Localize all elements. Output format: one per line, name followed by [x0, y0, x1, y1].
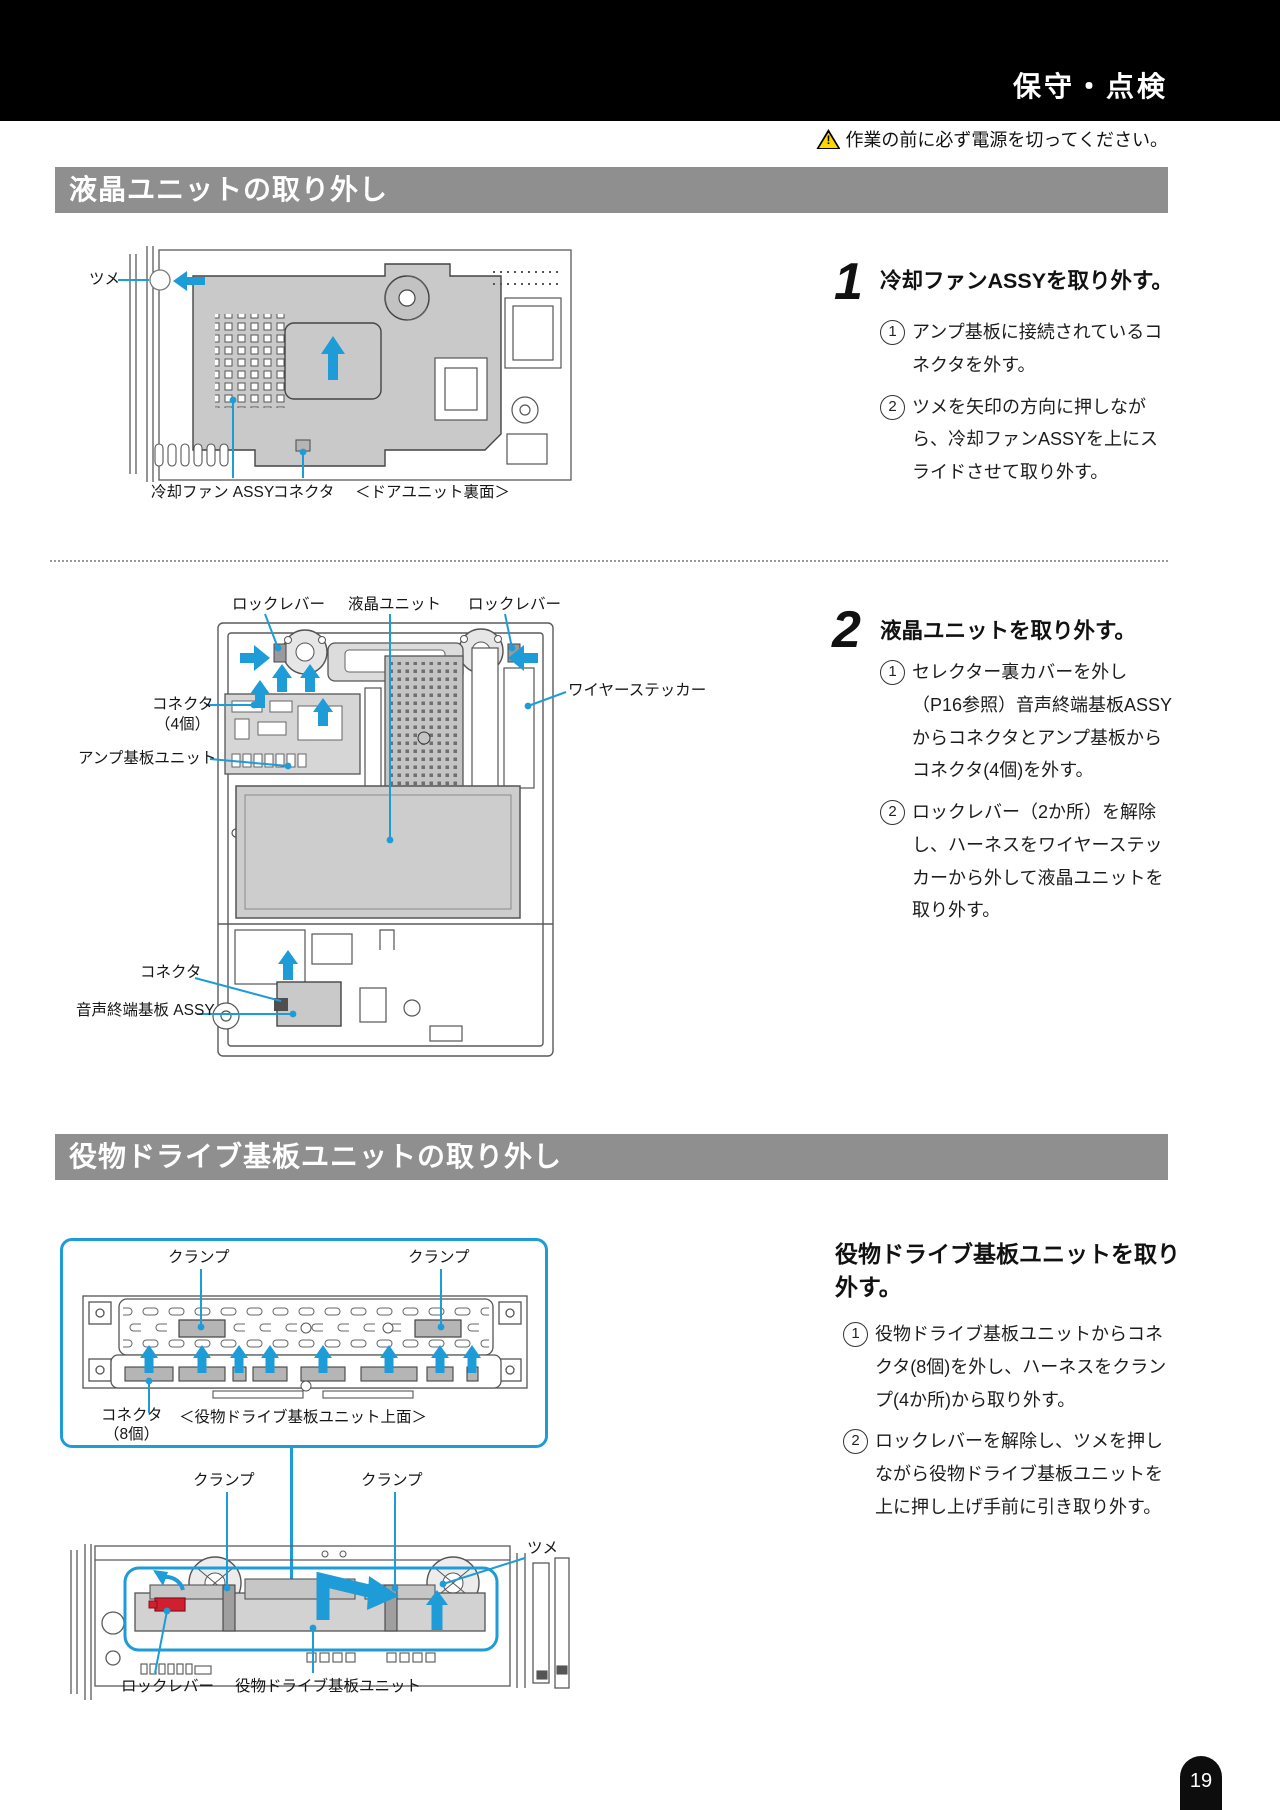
- label-clamp-right: クランプ: [408, 1249, 470, 1268]
- vent-grid: [215, 314, 287, 408]
- step-2-title: 液晶ユニットを取り外す。: [880, 614, 1180, 645]
- step-2-items: 1 セレクター裏カバーを外し（P16参照）音声終端基板ASSYからコネクタとアン…: [880, 656, 1176, 927]
- list-item: 1 アンプ基板に接続されているコネクタを外す。: [880, 316, 1176, 382]
- lcd-panel: [236, 786, 520, 918]
- list-item: 2 ロックレバー（2か所）を解除し、ハーネスをワイヤーステッカーから外して液晶ユ…: [880, 796, 1176, 927]
- label-clamp-left-2: クランプ: [193, 1472, 255, 1491]
- caption-drive-board-top: ＜役物ドライブ基板ユニット上面＞: [179, 1409, 427, 1428]
- circled-number: 1: [880, 320, 905, 345]
- list-item: 2 ロックレバーを解除し、ツメを押しながら役物ドライブ基板ユニットを上に押し上げ…: [843, 1425, 1173, 1523]
- step-2-number: 2: [832, 604, 861, 656]
- diagram-lcd-unit: ロックレバー 液晶ユニット ロックレバー ワイヤーステッカー コネクタ （4個）…: [60, 588, 710, 1066]
- label-lcd-unit: 液晶ユニット: [348, 596, 441, 615]
- door-unit-rear-drawing: [55, 238, 615, 506]
- label-tsume: ツメ: [89, 271, 120, 290]
- label-wire-sticker: ワイヤーステッカー: [568, 682, 706, 701]
- list-item: 1 セレクター裏カバーを外し（P16参照）音声終端基板ASSYからコネクタとアン…: [880, 656, 1176, 787]
- label-lock-lever-right: ロックレバー: [468, 596, 561, 615]
- step-3-title: 役物ドライブ基板ユニットを取り外す。: [835, 1238, 1180, 1303]
- page-number: 19: [1190, 1770, 1212, 1792]
- label-connector-8: コネクタ: [101, 1407, 162, 1426]
- label-connector-audio: コネクタ: [140, 964, 201, 983]
- label-lock-lever: ロックレバー: [121, 1678, 214, 1697]
- step-1-items: 1 アンプ基板に接続されているコネクタを外す。 2 ツメを矢印の方向に押しながら…: [880, 316, 1176, 489]
- header-bar: 保守・点検: [0, 0, 1280, 121]
- warning-text: 作業の前に必ず電源を切ってください。: [845, 126, 1168, 152]
- circled-number: 2: [843, 1429, 868, 1454]
- circled-number: 1: [880, 660, 905, 685]
- label-connector-8-count: （8個）: [104, 1426, 159, 1445]
- section-title-lcd-removal: 液晶ユニットの取り外し: [55, 167, 1168, 213]
- list-item: 1 役物ドライブ基板ユニットからコネクタ(8個)を外し、ハーネスをクランプ(4か…: [843, 1318, 1173, 1416]
- caption-door-unit-rear: ＜ドアユニット裏面＞: [355, 484, 510, 503]
- label-lock-lever-left: ロックレバー: [232, 596, 325, 615]
- circled-number: 2: [880, 800, 905, 825]
- label-clamp-right-2: クランプ: [361, 1472, 423, 1491]
- label-fan-assy: 冷却ファン ASSY: [151, 484, 274, 503]
- label-connector-4-count: （4個）: [155, 716, 210, 735]
- hinge-wheel-left: [283, 630, 327, 674]
- section-title-drive-board-removal: 役物ドライブ基板ユニットの取り外し: [55, 1134, 1168, 1180]
- diagram-door-unit-rear: ツメ 冷却ファン ASSY コネクタ ＜ドアユニット裏面＞: [55, 238, 615, 506]
- label-audio-board: 音声終端基板 ASSY: [76, 1002, 215, 1021]
- page-number-tab: 19: [1180, 1756, 1222, 1810]
- circled-number: 1: [843, 1322, 868, 1347]
- step-3-items: 1 役物ドライブ基板ユニットからコネクタ(8個)を外し、ハーネスをクランプ(4か…: [843, 1318, 1173, 1524]
- label-amp-board-unit: アンプ基板ユニット: [78, 750, 216, 769]
- tab-hole: [150, 270, 170, 290]
- list-item: 2 ツメを矢印の方向に押しながら、冷却ファンASSYを上にスライドさせて取り外す…: [880, 391, 1176, 489]
- label-clamp-left: クランプ: [168, 1249, 230, 1268]
- diagram-drive-board-top: クランプ クランプ コネクタ （8個） ＜役物ドライブ基板ユニット上面＞: [60, 1238, 548, 1448]
- power-warning: 作業の前に必ず電源を切ってください。: [816, 126, 1168, 152]
- diagram-drive-board-in-machine: クランプ クランプ ツメ ロックレバー 役物ドライブ基板ユニット: [55, 1468, 685, 1718]
- dotted-divider: [50, 560, 1168, 562]
- step-1-number: 1: [834, 256, 863, 308]
- warning-triangle-icon: [816, 129, 840, 149]
- circled-number: 2: [880, 395, 905, 420]
- manual-page: 保守・点検 作業の前に必ず電源を切ってください。 液晶ユニットの取り外し: [0, 0, 1280, 1810]
- cooling-fan: [385, 276, 429, 320]
- label-tsume-2: ツメ: [527, 1540, 558, 1559]
- page-title: 保守・点検: [1013, 65, 1168, 105]
- label-connector: コネクタ: [273, 484, 334, 503]
- step-1-title: 冷却ファンASSYを取り外す。: [880, 264, 1180, 295]
- lcd-unit-drawing: [60, 588, 710, 1066]
- label-drive-board-unit: 役物ドライブ基板ユニット: [235, 1678, 421, 1697]
- label-connector-4: コネクタ: [152, 696, 213, 715]
